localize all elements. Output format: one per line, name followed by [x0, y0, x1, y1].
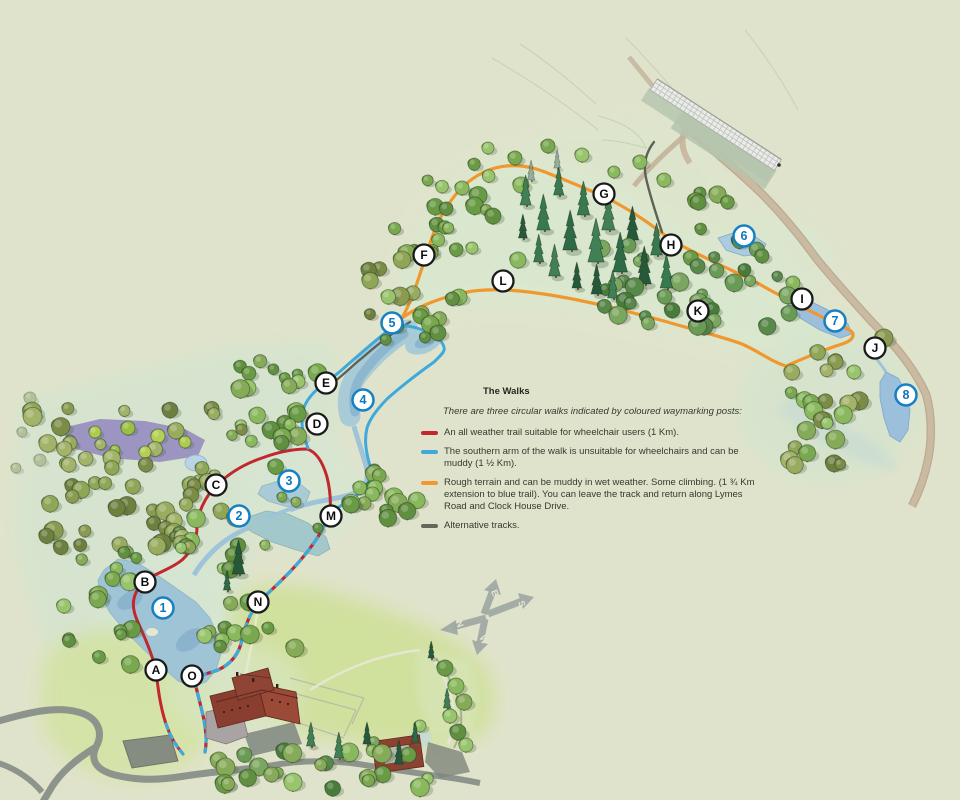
legend-item-red-text: An all weather trail suitable for wheelc… [444, 427, 679, 439]
marker-F: F [414, 245, 435, 266]
marker-D: D [307, 414, 328, 435]
marker-A: A [146, 660, 167, 681]
marker-O: O [182, 666, 203, 687]
marker-6: 6 [734, 226, 755, 247]
marker-K: K [688, 301, 709, 322]
legend-item-gray: Alternative tracks. [421, 520, 773, 532]
legend: The Walks There are three circular walks… [421, 386, 773, 539]
marker-5: 5 [382, 313, 403, 334]
svg-text:F: F [420, 248, 427, 262]
svg-text:B: B [141, 575, 150, 589]
svg-text:L: L [499, 274, 506, 288]
legend-item-orange: Rough terrain and can be muddy in wet we… [421, 477, 773, 513]
marker-C: C [206, 475, 227, 496]
legend-title: The Walks [483, 386, 773, 398]
marker-2: 2 [229, 506, 250, 527]
svg-text:N: N [254, 595, 263, 609]
legend-intro: There are three circular walks indicated… [443, 406, 773, 418]
marker-4: 4 [353, 390, 374, 411]
legend-item-red: An all weather trail suitable for wheelc… [421, 427, 773, 439]
svg-text:D: D [313, 417, 322, 431]
svg-text:7: 7 [832, 314, 839, 328]
marker-B: B [135, 572, 156, 593]
marker-H: H [661, 235, 682, 256]
marker-7: 7 [825, 311, 846, 332]
svg-text:6: 6 [741, 229, 748, 243]
svg-text:E: E [322, 376, 330, 390]
marker-3: 3 [279, 471, 300, 492]
marker-8: 8 [896, 385, 917, 406]
legend-item-gray-text: Alternative tracks. [444, 520, 520, 532]
svg-text:K: K [694, 304, 703, 318]
svg-text:4: 4 [360, 393, 367, 407]
marker-J: J [865, 338, 886, 359]
marker-G: G [594, 184, 615, 205]
marker-E: E [316, 373, 337, 394]
svg-text:J: J [872, 341, 879, 355]
svg-text:1: 1 [160, 601, 167, 615]
marker-I: I [792, 289, 813, 310]
svg-text:G: G [599, 187, 608, 201]
alternative-tracks-swatch [421, 524, 438, 529]
svg-text:O: O [187, 669, 196, 683]
svg-text:2: 2 [236, 509, 243, 523]
lake-island [146, 628, 158, 636]
svg-text:H: H [667, 238, 676, 252]
svg-text:8: 8 [903, 388, 910, 402]
walks-map: ESNW ABCDEFGHIJKLMNO12345678 The Walks T… [0, 0, 960, 800]
viaduct-end-mark [777, 163, 781, 167]
svg-text:5: 5 [389, 316, 396, 330]
svg-text:C: C [212, 478, 221, 492]
marker-1: 1 [153, 598, 174, 619]
svg-text:M: M [326, 509, 336, 523]
marker-M: M [321, 506, 342, 527]
svg-text:A: A [152, 663, 161, 677]
svg-text:3: 3 [286, 474, 293, 488]
marker-L: L [493, 271, 514, 292]
legend-item-orange-text: Rough terrain and can be muddy in wet we… [444, 477, 766, 513]
legend-item-blue-text: The southern arm of the walk is unsuitab… [444, 446, 766, 470]
legend-item-blue: The southern arm of the walk is unsuitab… [421, 446, 773, 470]
svg-text:I: I [800, 292, 803, 306]
blue-trail-swatch [421, 450, 438, 455]
red-trail-swatch [421, 431, 438, 436]
orange-trail-swatch [421, 481, 438, 486]
marker-N: N [248, 592, 269, 613]
